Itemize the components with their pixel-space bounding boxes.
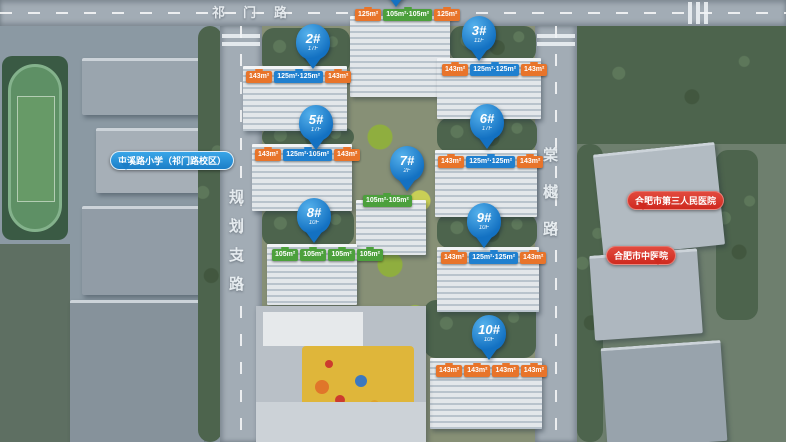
pin-building-number: 6# [480,112,494,125]
hospital-third-peoples-bubble: 合肥市第三人民医院 [627,191,724,210]
planning-branch-road-label: 规划支路 [229,190,244,306]
area-tag: 105m²·105m² [363,195,412,207]
hospital-tcm-bubble: 合肥市中医院 [606,246,676,265]
area-tags-building-10: 143m²143m²143m²143m² [435,365,548,377]
pin-floor-count: 17F [311,126,321,134]
pin-tail [471,50,487,61]
building-pin-5[interactable]: 5#17F [299,105,333,150]
area-tag: 143m² [520,252,546,264]
building-pin-1[interactable]: 1# [379,0,413,7]
area-tags-building-8: 105m²105m²105m²105m² [271,249,384,261]
pin-tail [308,139,324,150]
pin-bulb: 8#10F [297,198,331,234]
area-tags-building-9: 143m²125m²·125m²143m² [440,252,547,264]
pin-floor-count: 11F [474,37,484,45]
area-tag: 143m² [464,365,490,377]
pin-tail [399,180,415,191]
pin-floor-count: 10F [484,336,494,344]
area-tag: 143m² [521,64,547,76]
area-tag: 125m²·125m² [469,252,518,264]
area-tag: 143m² [442,64,468,76]
road-label-char: 路 [229,277,244,292]
area-tag: 143m² [325,71,351,83]
pin-tail [388,0,404,7]
area-tag: 143m² [436,365,462,377]
pin-building-number: 8# [307,206,321,219]
pin-tail [305,58,321,69]
area-tag: 143m² [255,149,281,161]
area-tag: 105m² [357,249,383,261]
road-label-char: 支 [229,248,244,263]
pin-floor-count: 2F [403,167,410,175]
area-tags-building-7: 105m²·105m² [362,195,413,207]
pin-bulb: 5#17F [299,105,333,141]
pin-bulb: 10#10F [472,315,506,351]
area-tag: 125m² [355,9,381,21]
area-tag: 143m² [517,156,543,168]
building-pin-8[interactable]: 8#10F [297,198,331,243]
area-tag: 105m²·105m² [383,9,432,21]
pin-bulb: 3#11F [462,16,496,52]
area-tag: 143m² [246,71,272,83]
pin-floor-count: 17F [308,45,318,53]
area-tags-building-3: 143m²125m²·125m²143m² [441,64,548,76]
area-tag: 125m² [434,9,460,21]
building-pin-3[interactable]: 3#11F [462,16,496,61]
area-tag: 143m² [334,149,360,161]
qimen-road-label: 祁门路 [212,2,305,21]
area-tag: 125m²·125m² [466,156,515,168]
area-tags-building-5: 143m²125m²·105m²143m² [254,149,361,161]
masterplan-map: 1#2#17F3#11F5#17F6#17F7#2F8#10F9#10F10#1… [0,0,786,442]
pin-tail [481,349,497,360]
area-tag: 143m² [441,252,467,264]
pin-building-number: 10# [478,323,500,336]
building-pin-2[interactable]: 2#17F [296,24,330,69]
pin-floor-count: 10F [479,224,489,232]
building-pin-7[interactable]: 7#2F [390,146,424,191]
pin-bulb: 2#17F [296,24,330,60]
area-tags-building-1: 125m²105m²·105m²125m² [354,9,461,21]
pin-floor-count: 17F [482,125,492,133]
area-tag: 105m² [328,249,354,261]
area-tag: 105m² [272,249,298,261]
road-label-char: 规 [229,190,244,205]
road-label-char: 棠 [543,148,558,163]
pin-tail [479,138,495,149]
road-label-char: 樾 [543,185,558,200]
pin-tail [476,237,492,248]
pin-building-number: 2# [306,32,320,45]
area-tags-building-6: 143m²125m²·125m²143m² [437,156,544,168]
area-tag: 125m²·125m² [274,71,323,83]
area-tag: 143m² [492,365,518,377]
pin-floor-count: 10F [309,219,319,227]
pin-bulb: 9#10F [467,203,501,239]
pin-bulb: 7#2F [390,146,424,182]
area-tag: 105m² [300,249,326,261]
annotation-overlay: 1#2#17F3#11F5#17F6#17F7#2F8#10F9#10F10#1… [0,0,786,442]
area-tag: 125m²·105m² [283,149,332,161]
area-tag: 143m² [438,156,464,168]
building-pin-9[interactable]: 9#10F [467,203,501,248]
tangyue-road-label: 棠樾路 [543,148,558,259]
school-bubble: 屯溪路小学（祁门路校区） [110,151,234,170]
building-pin-6[interactable]: 6#17F [470,104,504,149]
pin-tail [306,232,322,243]
road-label-char: 路 [543,222,558,237]
area-tag: 125m²·125m² [470,64,519,76]
pin-building-number: 3# [472,24,486,37]
pin-building-number: 7# [400,154,414,167]
area-tags-building-2: 143m²125m²·125m²143m² [245,71,352,83]
pin-building-number: 9# [477,211,491,224]
building-pin-10[interactable]: 10#10F [472,315,506,360]
road-label-char: 划 [229,219,244,234]
area-tag: 143m² [521,365,547,377]
pin-building-number: 5# [309,113,323,126]
pin-bulb: 6#17F [470,104,504,140]
